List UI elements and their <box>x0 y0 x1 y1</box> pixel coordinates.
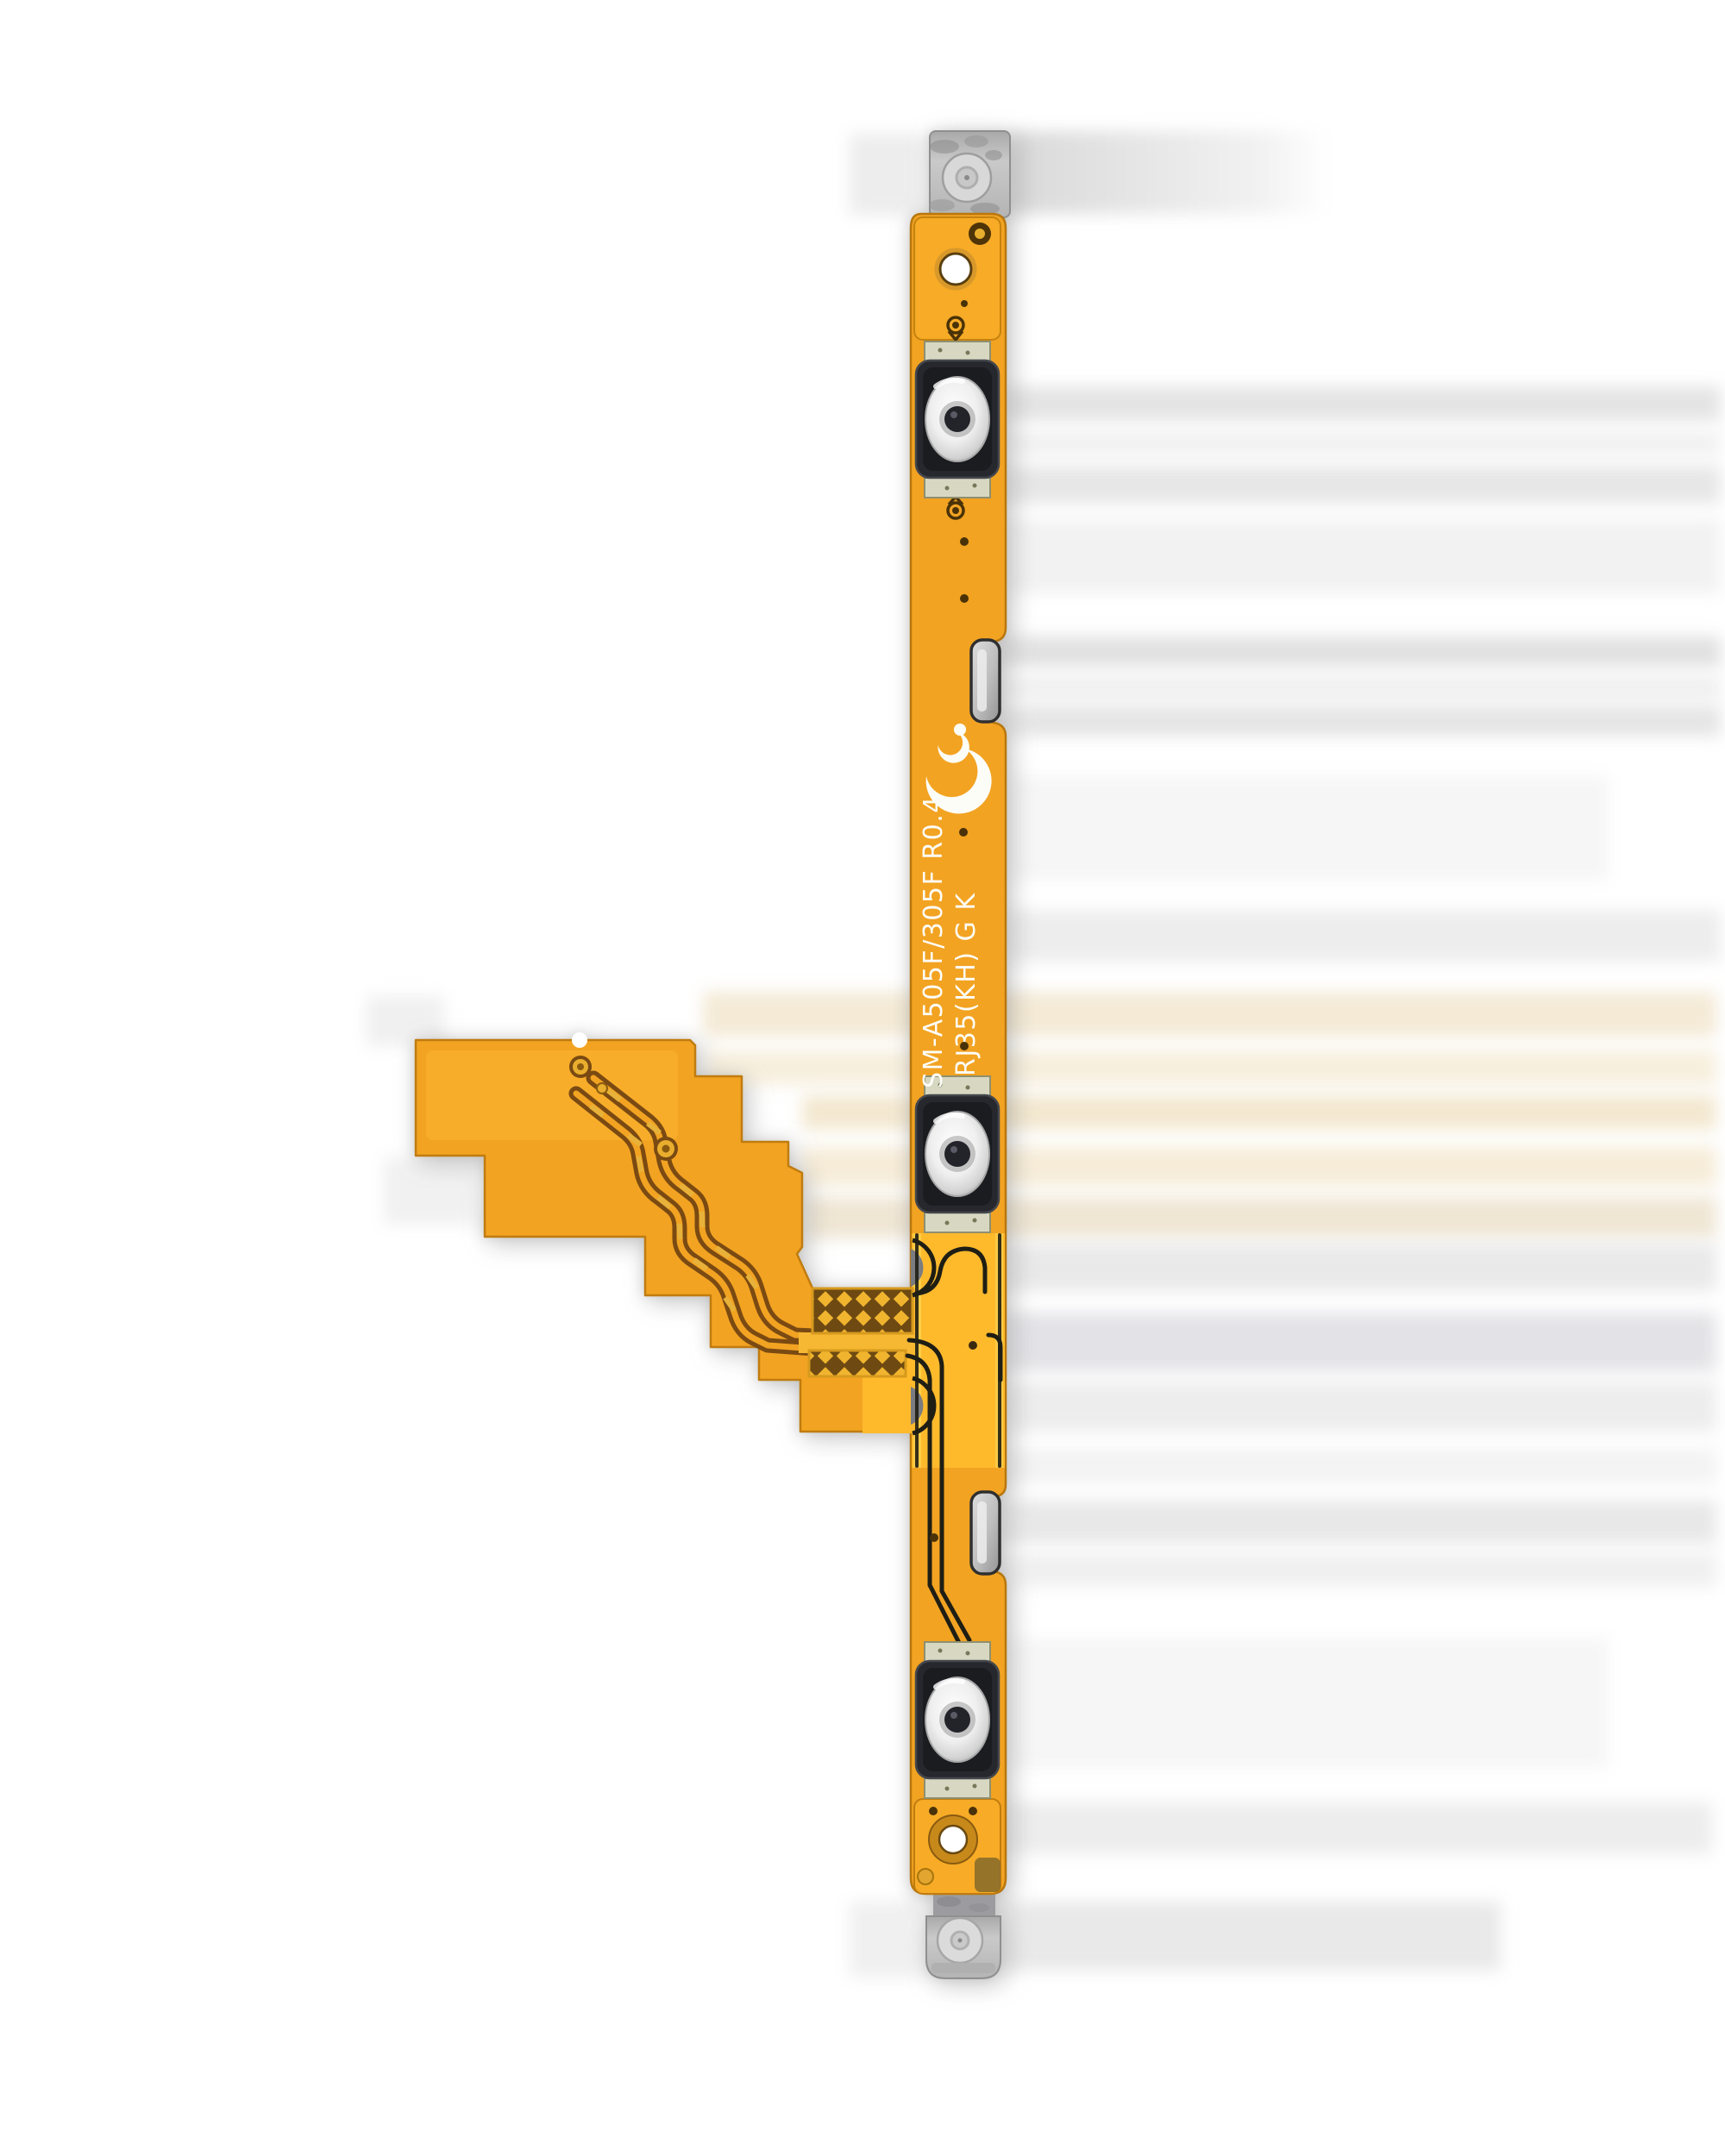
silkscreen-line1: SM-A505F/305F R0.4 <box>919 795 949 1088</box>
product-photo: SM-A505F/305F R0.4 RJ35(KH) G K <box>0 0 1725 2156</box>
silkscreen-dot <box>930 1533 938 1542</box>
top-end-plate <box>914 217 1000 340</box>
top-mounting-bracket <box>929 131 1010 217</box>
hatched-zone <box>809 1351 906 1376</box>
silkscreen-dot <box>960 1042 969 1050</box>
connector-pad <box>426 1050 678 1140</box>
side-contact-clip-2 <box>971 1492 1000 1574</box>
dome-switch-button-1 <box>916 342 999 498</box>
silkscreen-dot <box>959 828 968 837</box>
bottom-mounting-bracket <box>926 1892 1000 1978</box>
bottom-end-plate <box>914 1799 1000 1894</box>
hatched-zone <box>812 1288 913 1333</box>
gold-test-pad <box>918 1869 933 1884</box>
flex-cable-photo: SM-A505F/305F R0.4 RJ35(KH) G K <box>0 0 1725 2156</box>
dome-switch-button-3 <box>916 1642 999 1798</box>
side-contact-clip-1 <box>971 640 1000 722</box>
dome-switch-button-2 <box>916 1076 999 1232</box>
gold-stiffener-section <box>912 1233 1005 1468</box>
corner-cutout <box>975 1858 1000 1892</box>
